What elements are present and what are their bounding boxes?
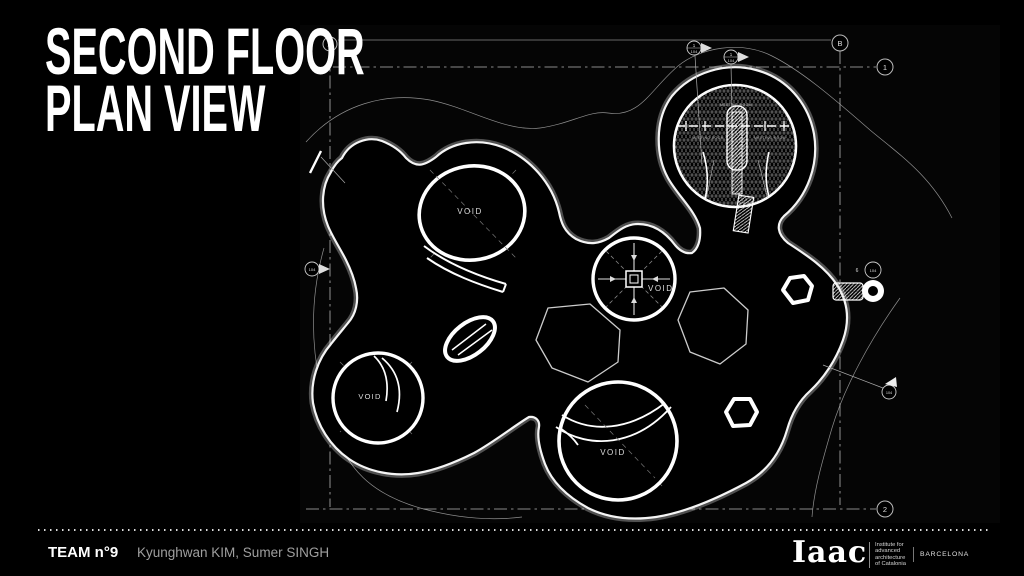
- svg-text:1: 1: [883, 63, 887, 72]
- bridge-connector: [833, 280, 884, 302]
- svg-text:6: 6: [856, 268, 859, 274]
- team-members: Kyunghwan KIM, Sumer SINGH: [137, 545, 329, 560]
- logo-city-label: BARCELONA: [920, 551, 969, 558]
- dotted-separator: [38, 529, 990, 531]
- void-center: VOID: [593, 238, 675, 320]
- slide-title: SECOND FLOOR PLAN VIEW: [45, 24, 365, 138]
- section-marker-3: 104: [305, 262, 330, 276]
- presentation-slide: VOID VOID VOID VOID: [0, 0, 1024, 576]
- grid-marker-2: 2: [877, 501, 893, 517]
- svg-text:B: B: [837, 39, 842, 48]
- void-bottom: VOID: [556, 382, 677, 500]
- room-label: MEETING ROOM: [720, 103, 752, 107]
- grid-marker-b: B: [832, 35, 848, 51]
- void-polygon-right-lower: [726, 399, 757, 426]
- svg-text:104: 104: [691, 49, 698, 54]
- svg-text:2: 2: [883, 505, 887, 514]
- footer: TEAM n°9 Kyunghwan KIM, Sumer SINGH Iaac…: [0, 538, 1024, 576]
- grid-marker-1: 1: [877, 59, 893, 75]
- svg-text:104: 104: [870, 268, 877, 273]
- iaac-logo: Iaac: [792, 535, 867, 570]
- room-label: MEETING ROOM: [754, 136, 786, 140]
- institute-line: of Catalonia: [875, 561, 906, 567]
- reference-tick: [310, 151, 321, 173]
- section-marker-1: 1 104: [687, 41, 712, 55]
- room-label: MEETING ROOM: [692, 136, 724, 140]
- svg-text:104: 104: [728, 58, 735, 63]
- void-label: VOID: [457, 207, 483, 216]
- void-label: VOID: [358, 392, 381, 401]
- void-label: VOID: [648, 284, 674, 293]
- team-label: TEAM n°9: [48, 544, 118, 561]
- section-marker-2: 1 104: [724, 50, 749, 64]
- section-marker-5: 104: [882, 377, 897, 399]
- logo-divider-2: [913, 547, 914, 562]
- svg-text:104: 104: [309, 267, 316, 272]
- void-label: VOID: [600, 448, 626, 457]
- svg-text:104: 104: [886, 391, 892, 395]
- title-line-2: PLAN VIEW: [45, 81, 365, 138]
- logo-divider-1: [869, 542, 870, 568]
- section-marker-4: 6 104: [856, 262, 881, 278]
- logo-institute-text: Institute for advanced architecture of C…: [875, 542, 906, 568]
- void-lower-left: VOID: [333, 353, 423, 443]
